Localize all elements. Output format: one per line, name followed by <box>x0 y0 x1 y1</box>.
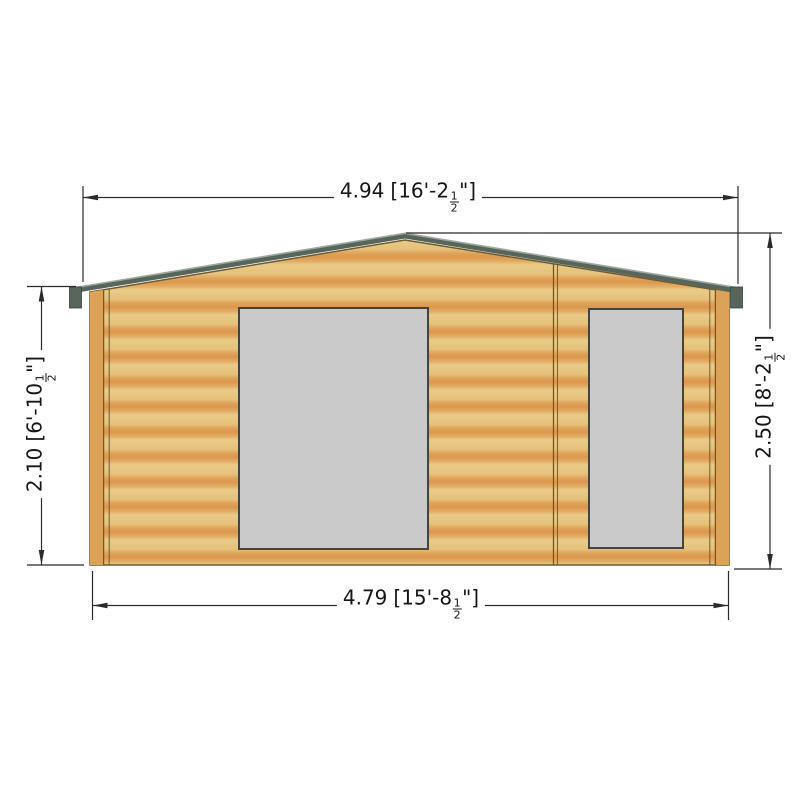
dimension-meters: 4.79 <box>343 586 388 610</box>
fascia-end-right <box>731 287 743 308</box>
dimension-imperial: [16'-2 <box>390 179 449 203</box>
arrowhead-bottom <box>39 550 45 565</box>
dimension-label-right: 2.50[8'-212"] <box>754 329 787 465</box>
dimension-imperial-suffix: "] <box>23 356 47 373</box>
corner-board-right <box>716 230 730 570</box>
dimension-imperial: [6'-10 <box>23 383 47 442</box>
cabin-elevation-drawing: 4.94[16'-212"] 4.79[15'-812"] 2.10[6'-10… <box>0 0 800 800</box>
dimension-label-left: 2.10[6'-1012"] <box>25 350 58 498</box>
dimension-meters: 2.50 <box>752 414 776 459</box>
dimension-imperial: [15'-8 <box>393 586 452 610</box>
arrowhead-bottom <box>767 554 773 569</box>
elevation-canvas <box>0 0 800 800</box>
dimension-fraction: 12 <box>35 373 58 382</box>
window-small <box>589 309 683 548</box>
dimension-label-bottom: 4.79[15'-812"] <box>337 588 485 621</box>
dimension-imperial-suffix: "] <box>752 335 776 352</box>
arrowhead-top <box>39 287 45 302</box>
arrowhead-right <box>723 195 738 201</box>
dimension-imperial-suffix: "] <box>462 586 479 610</box>
corner-board-left <box>90 230 104 570</box>
arrowhead-left <box>83 195 98 201</box>
dimension-label-top: 4.94[16'-212"] <box>334 181 482 214</box>
dimension-fraction: 12 <box>450 191 459 214</box>
dimension-fraction: 12 <box>453 598 462 621</box>
dimension-fraction: 12 <box>764 353 787 362</box>
arrowhead-left <box>93 603 108 609</box>
dimension-meters: 4.94 <box>340 179 385 203</box>
arrowhead-right <box>714 603 729 609</box>
arrowhead-top <box>767 233 773 248</box>
window-large <box>239 308 428 549</box>
fascia-end-left <box>70 287 82 308</box>
cabin-building <box>70 230 743 570</box>
dimension-imperial: [8'-2 <box>752 362 776 408</box>
dimension-imperial-suffix: "] <box>459 179 476 203</box>
dimension-meters: 2.10 <box>23 448 47 493</box>
